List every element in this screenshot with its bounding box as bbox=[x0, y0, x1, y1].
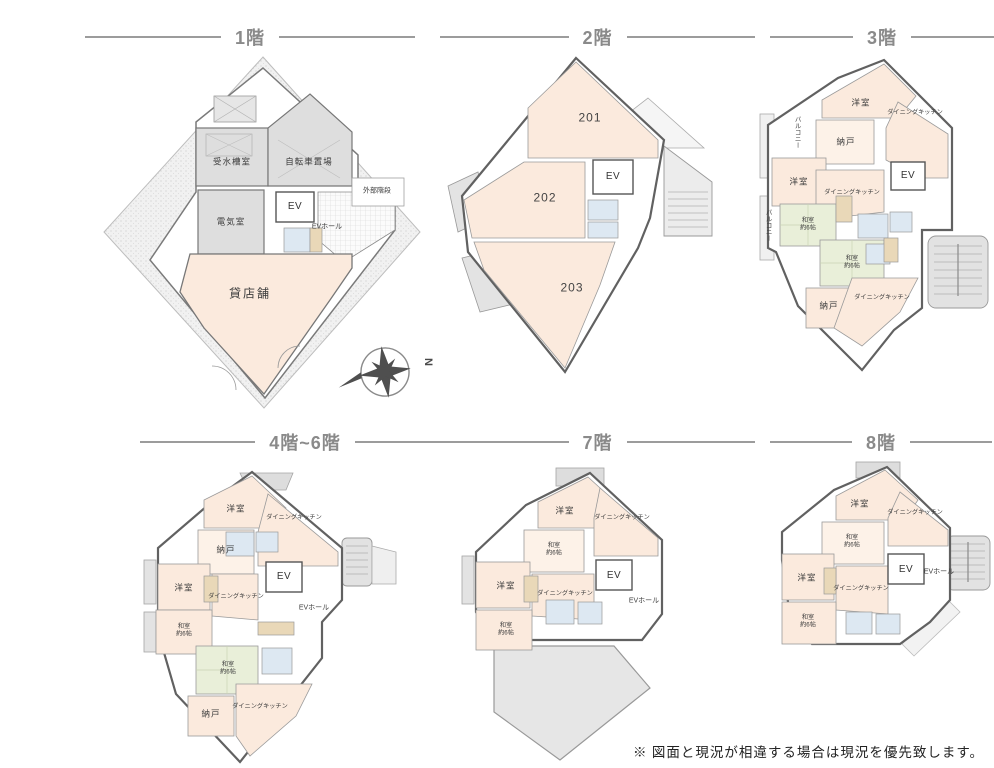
label-3f-balcony-lower: バルコニー bbox=[763, 209, 771, 242]
header-4-6f: 4階~6階 bbox=[140, 432, 470, 452]
floorplan-2f bbox=[448, 58, 712, 372]
room-46f-dk-top bbox=[258, 494, 338, 566]
label-water-tank-room: 受水槽室 bbox=[213, 157, 251, 168]
label-8f-washitsu-b: 和室 約6帖 bbox=[800, 614, 816, 629]
label-3f-balcony-upper: バルコニー bbox=[792, 116, 800, 149]
label-8f-dk-top: ダイニングキッチン bbox=[887, 509, 943, 517]
label-46f-dk-mid: ダイニングキッチン bbox=[208, 593, 264, 601]
label-7f-ev-hall: EVホール bbox=[629, 598, 659, 607]
floor-title-2f: 2階 bbox=[583, 24, 613, 50]
floorplan-3f bbox=[760, 60, 988, 370]
label-elevator-1f: EV bbox=[288, 201, 302, 214]
label-elevator-7f: EV bbox=[607, 570, 621, 583]
label-elevator-8f: EV bbox=[899, 564, 913, 577]
terrace-7f bbox=[494, 646, 650, 760]
floor-title-4-6f: 4階~6階 bbox=[269, 429, 341, 455]
compass-north-label: N bbox=[420, 358, 434, 366]
disclaimer-note: ※ 図面と現況が相違する場合は現況を優先致します。 bbox=[633, 741, 984, 761]
label-46f-dk-bottom: ダイニングキッチン bbox=[232, 703, 288, 711]
header-3f: 3階 bbox=[770, 27, 994, 47]
compass bbox=[334, 343, 415, 405]
label-unit-203: 203 bbox=[560, 281, 583, 296]
label-elevator-2f: EV bbox=[606, 171, 620, 184]
label-unit-202: 202 bbox=[533, 191, 556, 206]
label-3f-dk-top: ダイニングキッチン bbox=[887, 109, 943, 117]
label-8f-dk-mid: ダイニングキッチン bbox=[833, 585, 889, 593]
label-rental-shop: 貸店舗 bbox=[229, 287, 271, 302]
room-46f-dk-bottom bbox=[236, 684, 312, 756]
label-3f-nando-bottom: 納戸 bbox=[819, 301, 838, 312]
label-8f-yoshitsu-mid: 洋室 bbox=[797, 573, 816, 584]
floor-title-3f: 3階 bbox=[867, 24, 897, 50]
header-1f: 1階 bbox=[85, 27, 415, 47]
label-46f-nando-bottom: 納戸 bbox=[201, 709, 220, 720]
label-46f-washitsu-b: 和室 約6帖 bbox=[220, 661, 236, 676]
label-3f-washitsu-a: 和室 約6帖 bbox=[800, 217, 816, 232]
label-8f-washitsu-a: 和室 約6帖 bbox=[844, 534, 860, 549]
label-3f-washitsu-b: 和室 約6帖 bbox=[844, 255, 860, 270]
label-8f-yoshitsu-top: 洋室 bbox=[850, 499, 869, 510]
label-7f-washitsu-a: 和室 約6帖 bbox=[546, 542, 562, 557]
header-2f: 2階 bbox=[440, 27, 755, 47]
label-3f-yoshitsu-mid: 洋室 bbox=[789, 177, 808, 188]
label-elevator-4-6f: EV bbox=[277, 571, 291, 584]
label-unit-201: 201 bbox=[578, 111, 601, 126]
label-bicycle-parking: 自転車置場 bbox=[285, 157, 333, 168]
label-7f-yoshitsu-top: 洋室 bbox=[555, 506, 574, 517]
label-3f-nando-top: 納戸 bbox=[836, 137, 855, 148]
label-electric-room: 電気室 bbox=[217, 217, 246, 228]
label-7f-dk-top: ダイニングキッチン bbox=[594, 514, 650, 522]
label-46f-washitsu-a: 和室 約6帖 bbox=[176, 623, 192, 638]
label-ev-hall-1f: EVホール bbox=[312, 224, 342, 233]
label-7f-yoshitsu-mid: 洋室 bbox=[496, 581, 515, 592]
label-46f-ev-hall: EVホール bbox=[299, 605, 329, 614]
label-46f-dk-top: ダイニングキッチン bbox=[266, 514, 322, 522]
label-3f-yoshitsu-top: 洋室 bbox=[851, 98, 870, 109]
stairs-4-6f bbox=[342, 538, 372, 586]
header-7f: 7階 bbox=[440, 432, 755, 452]
label-3f-dk-mid: ダイニングキッチン bbox=[824, 189, 880, 197]
label-46f-yoshitsu-mid: 洋室 bbox=[174, 583, 193, 594]
label-46f-yoshitsu-top: 洋室 bbox=[226, 504, 245, 515]
label-3f-dk-bottom: ダイニングキッチン bbox=[854, 294, 910, 302]
room-7f-dk-top bbox=[594, 488, 658, 556]
header-8f: 8階 bbox=[770, 432, 992, 452]
label-exterior-stairs: 外部階段 bbox=[363, 188, 391, 197]
label-8f-ev-hall: EVホール bbox=[924, 569, 954, 578]
floor-title-8f: 8階 bbox=[866, 429, 896, 455]
label-46f-nando-top: 納戸 bbox=[216, 545, 235, 556]
stairs-2f bbox=[664, 146, 712, 236]
floorplan-sheet: 1階 2階 3階 4階~6階 7階 8階 受水槽室 自転車置場 電気室 EV E… bbox=[0, 0, 994, 768]
floor-title-1f: 1階 bbox=[235, 24, 265, 50]
floor-title-7f: 7階 bbox=[583, 429, 613, 455]
label-elevator-3f: EV bbox=[901, 170, 915, 183]
label-7f-dk-mid: ダイニングキッチン bbox=[537, 590, 593, 598]
floorplan-1f bbox=[104, 57, 420, 408]
floorplans-drawing bbox=[0, 0, 994, 768]
label-7f-washitsu-b: 和室 約6帖 bbox=[498, 622, 514, 637]
